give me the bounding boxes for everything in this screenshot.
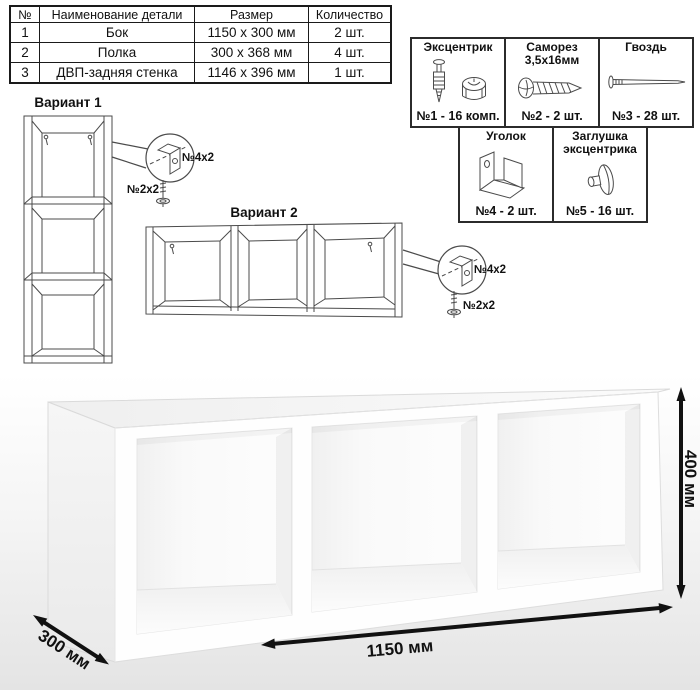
hardware-legend-row-2: Уголок №4 - 2 шт. Заглушка эксцентрика bbox=[458, 126, 648, 223]
part-name: ДВП-задняя стенка bbox=[40, 63, 195, 84]
part-qty: 1 шт. bbox=[309, 63, 392, 84]
shelf-opening-3 bbox=[498, 404, 640, 589]
hardware-qty: №5 - 16 шт. bbox=[566, 204, 634, 218]
hardware-name: Эксцентрик bbox=[424, 41, 493, 54]
variant2-shelf-drawing bbox=[146, 223, 402, 317]
nail-icon bbox=[604, 71, 688, 93]
hardware-item-nail: Гвоздь №3 - 28 шт. bbox=[598, 37, 694, 128]
hardware-qty: №3 - 28 шт. bbox=[612, 109, 680, 123]
hardware-spec: 3,5x16мм bbox=[525, 54, 579, 67]
hardware-item-cap: Заглушка эксцентрика №5 - 16 шт. bbox=[552, 126, 648, 223]
col-header-name: Наименование детали bbox=[40, 6, 195, 23]
part-size: 300 x 368 мм bbox=[195, 43, 309, 63]
corner-bracket-icon bbox=[466, 148, 546, 200]
part-qty: 2 шт. bbox=[309, 23, 392, 43]
eccentric-cap-icon bbox=[572, 159, 628, 201]
hardware-qty: №1 - 16 комп. bbox=[416, 109, 499, 123]
table-row: 2 Полка 300 x 368 мм 4 шт. bbox=[10, 43, 391, 63]
assembly-instruction-sheet: № Наименование детали Размер Количество … bbox=[0, 0, 700, 690]
col-header-num: № bbox=[10, 6, 40, 23]
table-row: 3 ДВП-задняя стенка 1146 x 396 мм 1 шт. bbox=[10, 63, 391, 84]
hardware-legend-row-1: Эксцентрик №1 - 16 комп. bbox=[410, 37, 694, 128]
eccentric-icon bbox=[419, 57, 497, 107]
variant1-callout bbox=[112, 134, 194, 207]
part-qty: 4 шт. bbox=[309, 43, 392, 63]
part-size: 1146 x 396 мм bbox=[195, 63, 309, 84]
hardware-name: Заглушка эксцентрика bbox=[556, 130, 644, 157]
variant1-screw-label: №2x2 bbox=[127, 184, 159, 196]
variant1-title: Вариант 1 bbox=[8, 95, 128, 110]
table-row: 1 Бок 1150 x 300 мм 2 шт. bbox=[10, 23, 391, 43]
parts-table-header-row: № Наименование детали Размер Количество bbox=[10, 6, 391, 23]
part-size: 1150 x 300 мм bbox=[195, 23, 309, 43]
hardware-qty: №2 - 2 шт. bbox=[521, 109, 582, 123]
variant1-shelf-drawing bbox=[24, 116, 112, 363]
hardware-item-eccentric: Эксцентрик №1 - 16 комп. bbox=[410, 37, 506, 128]
shelf-opening-1 bbox=[137, 428, 292, 634]
part-num: 3 bbox=[10, 63, 40, 84]
variant2-bracket-label: №4x2 bbox=[474, 264, 506, 276]
variant1-bracket-label: №4x2 bbox=[182, 152, 214, 164]
hardware-name: Уголок bbox=[486, 130, 526, 143]
hardware-item-bracket: Уголок №4 - 2 шт. bbox=[458, 126, 554, 223]
col-header-qty: Количество bbox=[309, 6, 392, 23]
hardware-name: Саморез bbox=[526, 41, 578, 54]
hardware-qty: №4 - 2 шт. bbox=[475, 204, 536, 218]
shelf-opening-2 bbox=[312, 416, 477, 612]
col-header-size: Размер bbox=[195, 6, 309, 23]
screw-icon bbox=[513, 71, 591, 105]
part-num: 2 bbox=[10, 43, 40, 63]
part-name: Полка bbox=[40, 43, 195, 63]
height-dimension-label: 400 мм bbox=[680, 439, 700, 519]
parts-table: № Наименование детали Размер Количество … bbox=[9, 5, 392, 84]
variant2-title: Вариант 2 bbox=[204, 205, 324, 220]
hardware-name: Гвоздь bbox=[625, 41, 667, 54]
part-name: Бок bbox=[40, 23, 195, 43]
variant2-screw-label: №2x2 bbox=[463, 300, 495, 312]
part-num: 1 bbox=[10, 23, 40, 43]
hardware-item-screw: Саморез 3,5x16мм №2 - 2 шт. bbox=[504, 37, 600, 128]
